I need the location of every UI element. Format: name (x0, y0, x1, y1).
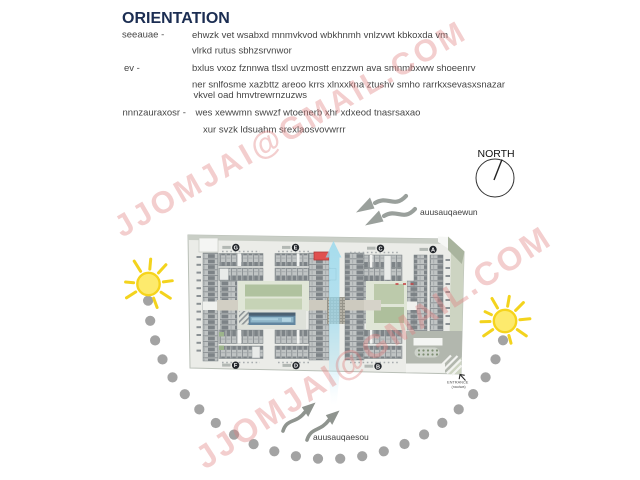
svg-text:vkvel oad hmvtrewrnzuzws: vkvel oad hmvtrewrnzuzws (194, 90, 308, 101)
svg-text:vlrkd rutus sbhzsrvnwor: vlrkd rutus sbhzsrvnwor (192, 46, 292, 57)
svg-text:F: F (234, 363, 238, 369)
svg-text:E: E (294, 246, 298, 252)
svg-text:C: C (378, 246, 382, 252)
svg-text:NORTH: NORTH (478, 148, 515, 160)
svg-text:A: A (431, 248, 435, 254)
svg-text:ENTRANCE: ENTRANCE (447, 380, 469, 385)
svg-text:G: G (234, 246, 238, 252)
svg-text:ev -: ev - (124, 63, 140, 74)
svg-text:ORIENTATION: ORIENTATION (122, 10, 230, 27)
svg-text:nnnzauraxosr -: nnnzauraxosr - (123, 108, 186, 119)
svg-text:auusauqaewun: auusauqaewun (420, 207, 478, 217)
svg-text:(nauiwa): (nauiwa) (452, 385, 466, 389)
svg-text:seeauae -: seeauae - (122, 30, 164, 41)
svg-text:auusauqaesou: auusauqaesou (313, 432, 369, 442)
svg-text:D: D (294, 364, 298, 370)
